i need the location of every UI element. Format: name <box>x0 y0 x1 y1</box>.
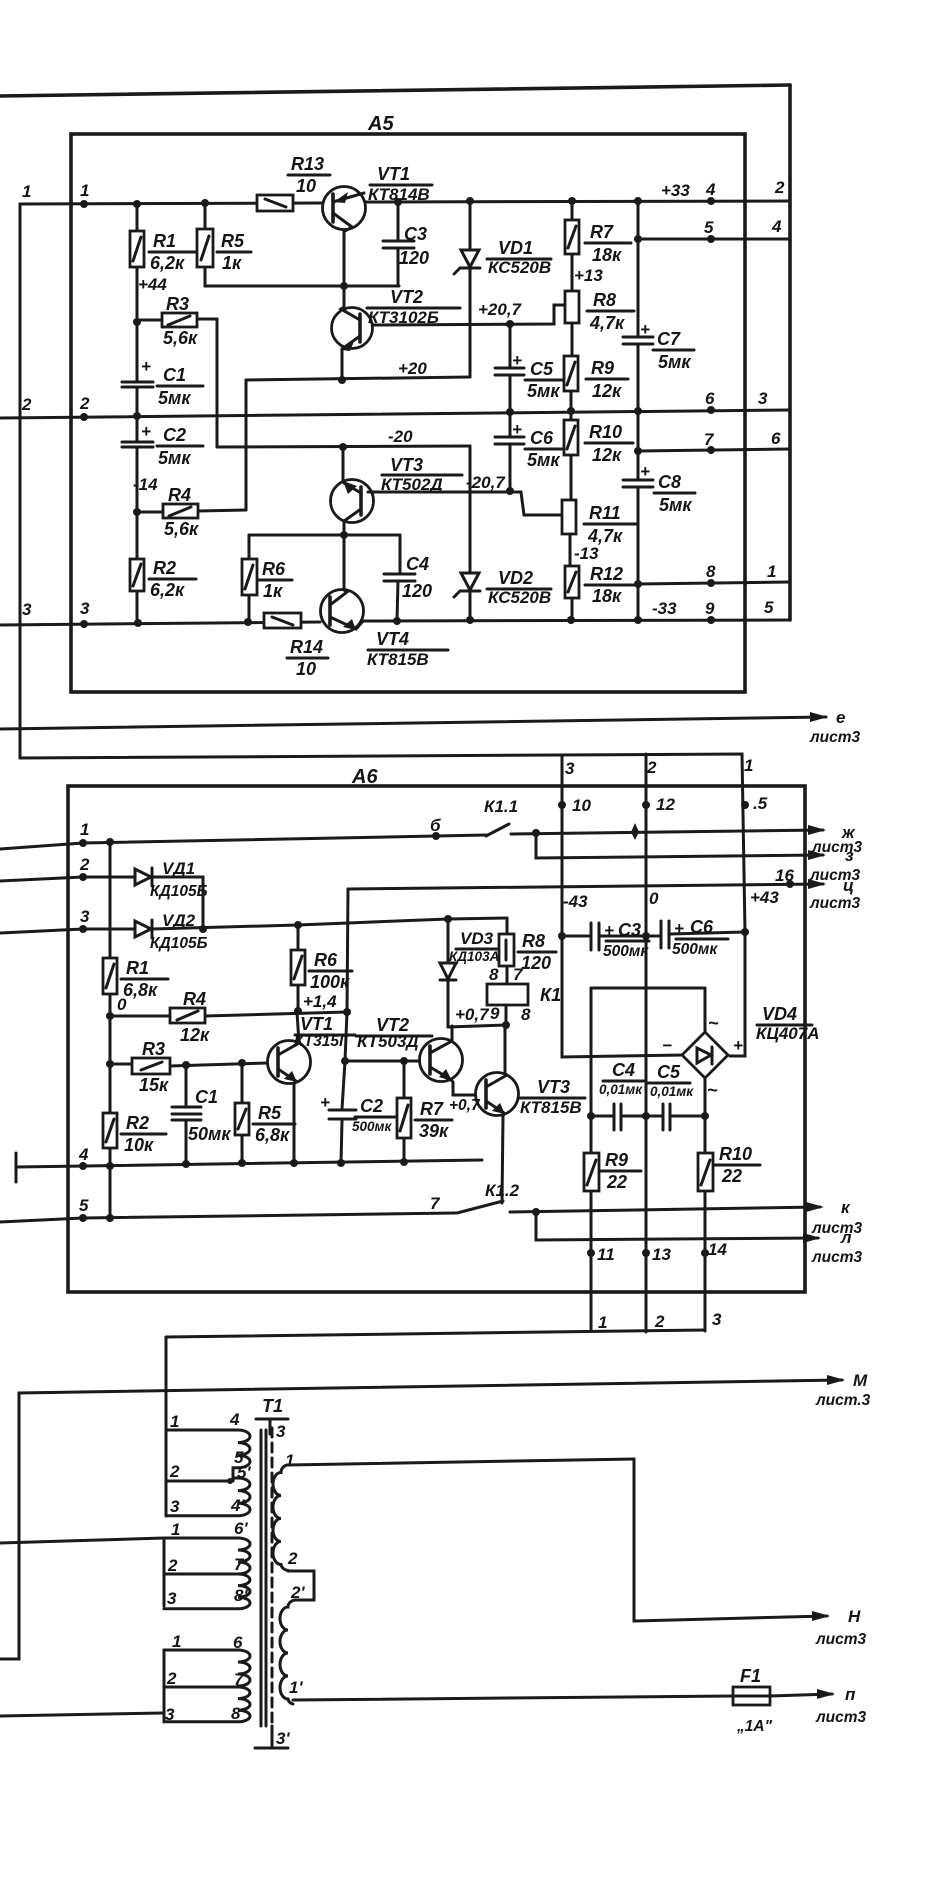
svg-text:3: 3 <box>165 1705 175 1724</box>
svg-text:3: 3 <box>167 1589 177 1608</box>
svg-text:3: 3 <box>565 759 575 778</box>
svg-text:3: 3 <box>758 389 768 408</box>
svg-text:Т1: Т1 <box>262 1396 283 1416</box>
svg-text:8: 8 <box>231 1704 241 1723</box>
svg-text:R5: R5 <box>221 231 245 251</box>
svg-text:7': 7' <box>234 1555 248 1574</box>
svg-text:лист3: лист3 <box>815 1631 867 1648</box>
svg-text:з: з <box>845 846 854 865</box>
svg-text:C7: C7 <box>657 329 681 349</box>
svg-text:4,7к: 4,7к <box>587 526 623 546</box>
svg-text:R4: R4 <box>183 989 206 1009</box>
svg-text:лист.3: лист.3 <box>815 1392 871 1409</box>
svg-text:VD1: VD1 <box>498 238 533 258</box>
svg-text:500мк: 500мк <box>603 943 649 960</box>
svg-text:6,8к: 6,8к <box>255 1125 290 1145</box>
svg-text:+1,4: +1,4 <box>303 992 337 1011</box>
svg-text:C1: C1 <box>195 1087 218 1107</box>
svg-text:+: + <box>141 357 151 376</box>
svg-text:лист3: лист3 <box>809 895 861 912</box>
svg-text:-13: -13 <box>574 544 599 563</box>
svg-text:-20: -20 <box>388 427 413 446</box>
svg-text:VD2: VD2 <box>498 568 533 588</box>
svg-text:2: 2 <box>166 1669 177 1688</box>
svg-text:R9: R9 <box>605 1150 628 1170</box>
svg-text:1: 1 <box>767 562 776 581</box>
svg-text:5: 5 <box>79 1196 89 1215</box>
svg-text:4': 4' <box>230 1496 245 1515</box>
svg-text:VT4: VT4 <box>376 629 409 649</box>
svg-text:22: 22 <box>606 1172 627 1192</box>
svg-text:2: 2 <box>774 178 785 197</box>
svg-text:VD3: VD3 <box>460 929 494 948</box>
svg-text:КД105Б: КД105Б <box>150 883 208 900</box>
svg-text:+13: +13 <box>574 266 603 285</box>
svg-text:100к: 100к <box>310 972 350 992</box>
svg-text:+0,7: +0,7 <box>455 1005 490 1024</box>
svg-text:C2: C2 <box>163 425 186 445</box>
svg-text:16: 16 <box>775 866 794 885</box>
svg-text:КД105Б: КД105Б <box>150 935 208 952</box>
svg-text:6: 6 <box>705 389 715 408</box>
svg-text:0,01мк: 0,01мк <box>650 1084 694 1099</box>
svg-text:4,7к: 4,7к <box>589 313 625 333</box>
svg-text:КТ815В: КТ815В <box>520 1098 582 1117</box>
svg-text:4: 4 <box>771 217 782 236</box>
svg-text:-20,7: -20,7 <box>466 473 506 492</box>
svg-text:3: 3 <box>170 1497 180 1516</box>
svg-text:к: к <box>841 1198 851 1217</box>
svg-text:5мк: 5мк <box>659 495 692 515</box>
svg-text:3': 3' <box>276 1729 290 1748</box>
svg-text:0: 0 <box>117 995 127 1014</box>
svg-text:R9: R9 <box>591 358 614 378</box>
svg-text:3: 3 <box>80 599 90 618</box>
svg-text:+20: +20 <box>398 359 427 378</box>
svg-text:C4: C4 <box>406 554 429 574</box>
svg-text:2: 2 <box>646 758 657 777</box>
svg-text:5мк: 5мк <box>158 388 191 408</box>
svg-text:12к: 12к <box>592 445 622 465</box>
svg-text:2: 2 <box>654 1312 665 1331</box>
svg-text:К1.1: К1.1 <box>484 797 518 816</box>
svg-text:Н: Н <box>848 1607 861 1626</box>
svg-text:+0,7: +0,7 <box>449 1097 481 1114</box>
svg-text:R10: R10 <box>589 422 622 442</box>
svg-text:3: 3 <box>80 907 90 926</box>
svg-text:VT3: VT3 <box>537 1077 570 1097</box>
svg-text:КС520В: КС520В <box>488 258 551 277</box>
svg-text:R12: R12 <box>590 564 623 584</box>
svg-text:9: 9 <box>490 1004 500 1023</box>
svg-text:18к: 18к <box>592 245 622 265</box>
svg-text:-43: -43 <box>563 892 588 911</box>
svg-text:VT1: VT1 <box>300 1014 333 1034</box>
svg-text:3: 3 <box>712 1310 722 1329</box>
svg-text:6,8к: 6,8к <box>123 980 158 1000</box>
svg-text:-14: -14 <box>133 475 158 494</box>
svg-text:R8: R8 <box>593 290 616 310</box>
svg-text:5': 5' <box>237 1463 251 1482</box>
svg-text:C3: C3 <box>618 920 641 940</box>
svg-text:R13: R13 <box>291 154 324 174</box>
svg-text:2: 2 <box>167 1556 178 1575</box>
svg-text:F1: F1 <box>740 1666 761 1686</box>
svg-text:8: 8 <box>489 965 499 984</box>
svg-text:+: + <box>604 921 614 940</box>
svg-text:5: 5 <box>704 218 714 237</box>
svg-text:R2: R2 <box>153 558 176 578</box>
svg-text:C4: C4 <box>612 1060 635 1080</box>
svg-text:+: + <box>512 420 522 439</box>
svg-text:10: 10 <box>572 796 591 815</box>
svg-text:C3: C3 <box>404 224 427 244</box>
svg-text:7: 7 <box>234 1670 245 1689</box>
svg-text:15к: 15к <box>139 1075 169 1095</box>
svg-text:5мк: 5мк <box>158 448 191 468</box>
svg-text:39к: 39к <box>419 1121 449 1141</box>
svg-text:7: 7 <box>513 965 524 984</box>
svg-text:3: 3 <box>22 600 32 619</box>
svg-text:К1.2: К1.2 <box>485 1181 520 1200</box>
svg-text:R3: R3 <box>166 294 189 314</box>
svg-text:2: 2 <box>287 1549 298 1568</box>
svg-text:A5: A5 <box>367 113 394 135</box>
svg-text:+: + <box>640 462 650 481</box>
svg-text:VД1: VД1 <box>162 859 195 878</box>
svg-text:R10: R10 <box>719 1144 752 1164</box>
svg-text:C1: C1 <box>163 365 186 385</box>
svg-text:лист3: лист3 <box>811 1220 863 1237</box>
svg-text:VD4: VD4 <box>762 1004 797 1024</box>
svg-text:A6: A6 <box>351 766 378 788</box>
svg-text:e: e <box>836 708 845 727</box>
svg-text:1к: 1к <box>222 253 242 273</box>
svg-text:2: 2 <box>79 394 90 413</box>
svg-text:+44: +44 <box>138 275 167 294</box>
svg-text:КТ503Д: КТ503Д <box>357 1032 419 1051</box>
svg-text:8: 8 <box>706 562 716 581</box>
svg-text:1': 1' <box>289 1678 303 1697</box>
svg-text:10: 10 <box>296 176 316 196</box>
svg-text:4: 4 <box>705 180 716 199</box>
svg-text:18к: 18к <box>592 586 622 606</box>
svg-text:12: 12 <box>656 795 675 814</box>
svg-text:9: 9 <box>705 599 715 618</box>
svg-text:+: + <box>640 320 650 339</box>
svg-text:~: ~ <box>707 1080 718 1100</box>
svg-text:120: 120 <box>399 248 429 268</box>
svg-text:~: ~ <box>708 1013 719 1033</box>
svg-text:КТ815В: КТ815В <box>367 650 429 669</box>
svg-text:2: 2 <box>79 855 90 874</box>
svg-text:13: 13 <box>652 1245 671 1264</box>
svg-text:5,6к: 5,6к <box>164 519 199 539</box>
svg-text:6,2к: 6,2к <box>150 253 185 273</box>
svg-text:R4: R4 <box>168 485 191 505</box>
svg-text:6: 6 <box>771 429 781 448</box>
svg-text:R3: R3 <box>142 1039 165 1059</box>
svg-text:7: 7 <box>430 1194 441 1213</box>
svg-text:12к: 12к <box>592 381 622 401</box>
svg-text:1: 1 <box>172 1632 181 1651</box>
svg-text:5мк: 5мк <box>527 450 560 470</box>
svg-text:5мк: 5мк <box>527 381 560 401</box>
svg-text:6': 6' <box>234 1519 248 1538</box>
svg-text:12к: 12к <box>180 1025 210 1045</box>
svg-text:лист3: лист3 <box>811 1249 863 1266</box>
svg-text:R6: R6 <box>262 559 286 579</box>
svg-text:R7: R7 <box>590 222 614 242</box>
svg-text:лист3: лист3 <box>809 729 861 746</box>
svg-text:500мк: 500мк <box>352 1119 393 1134</box>
svg-text:R2: R2 <box>126 1113 149 1133</box>
svg-text:1: 1 <box>598 1313 607 1332</box>
svg-text:+: + <box>674 919 684 938</box>
svg-text:5: 5 <box>764 598 774 617</box>
svg-text:1: 1 <box>22 182 31 201</box>
svg-text:R14: R14 <box>290 637 323 657</box>
svg-text:5,6к: 5,6к <box>163 328 198 348</box>
svg-text:4: 4 <box>78 1145 89 1164</box>
svg-text:6,2к: 6,2к <box>150 580 185 600</box>
svg-text:КТ315Г: КТ315Г <box>294 1033 350 1050</box>
svg-text:8': 8' <box>234 1586 248 1605</box>
svg-text:7: 7 <box>704 430 715 449</box>
svg-text:6: 6 <box>233 1633 243 1652</box>
svg-text:М: М <box>853 1371 868 1390</box>
svg-text:C8: C8 <box>658 472 681 492</box>
svg-text:б: б <box>430 816 441 835</box>
svg-text:„1А": „1А" <box>736 1718 773 1735</box>
svg-text:+: + <box>320 1093 330 1112</box>
svg-text:R1: R1 <box>126 958 149 978</box>
svg-text:0: 0 <box>649 889 659 908</box>
svg-text:2: 2 <box>21 395 32 414</box>
svg-text:VT2: VT2 <box>390 287 423 307</box>
svg-text:1: 1 <box>80 181 89 200</box>
svg-text:1: 1 <box>80 820 89 839</box>
svg-text:1к: 1к <box>263 581 283 601</box>
svg-text:К1: К1 <box>540 985 561 1005</box>
svg-text:-33: -33 <box>652 599 677 618</box>
svg-text:R11: R11 <box>589 503 621 523</box>
svg-text:+20,7: +20,7 <box>478 300 523 319</box>
svg-text:VT3: VT3 <box>390 455 423 475</box>
svg-text:+: + <box>141 422 151 441</box>
svg-text:1: 1 <box>170 1412 179 1431</box>
svg-text:2: 2 <box>169 1462 180 1481</box>
svg-text:+43: +43 <box>750 888 779 907</box>
svg-text:R6: R6 <box>314 950 338 970</box>
svg-text:+33: +33 <box>661 181 690 200</box>
svg-text:120: 120 <box>521 953 551 973</box>
svg-text:3: 3 <box>276 1422 286 1441</box>
svg-text:R8: R8 <box>522 931 545 951</box>
svg-text:КЦ407А: КЦ407А <box>756 1024 819 1043</box>
svg-text:C5: C5 <box>530 359 554 379</box>
svg-text:8: 8 <box>521 1005 531 1024</box>
svg-text:0,01мк: 0,01мк <box>599 1082 643 1097</box>
svg-text:120: 120 <box>402 581 432 601</box>
svg-text:1: 1 <box>744 756 753 775</box>
svg-text:+: + <box>733 1036 743 1055</box>
svg-text:R5: R5 <box>258 1103 282 1123</box>
svg-text:C2: C2 <box>360 1096 383 1116</box>
svg-text:1: 1 <box>285 1451 294 1470</box>
svg-text:10к: 10к <box>124 1135 154 1155</box>
svg-text:C6: C6 <box>690 917 714 937</box>
svg-text:C5: C5 <box>657 1062 681 1082</box>
svg-text:КС520В: КС520В <box>488 588 551 607</box>
svg-text:11: 11 <box>597 1245 615 1264</box>
svg-text:л: л <box>840 1228 852 1247</box>
svg-text:1: 1 <box>171 1520 180 1539</box>
svg-text:10: 10 <box>296 659 316 679</box>
svg-text:4: 4 <box>229 1410 240 1429</box>
svg-text:ц: ц <box>843 876 854 895</box>
svg-text:500мк: 500мк <box>672 941 718 958</box>
svg-text:5мк: 5мк <box>658 352 691 372</box>
svg-text:14: 14 <box>708 1240 727 1259</box>
svg-text:R1: R1 <box>153 231 176 251</box>
svg-text:.5: .5 <box>753 794 768 813</box>
svg-text:−: − <box>662 1036 672 1055</box>
svg-text:КД103А: КД103А <box>449 949 499 964</box>
svg-text:+: + <box>512 351 522 370</box>
svg-text:22: 22 <box>721 1166 742 1186</box>
svg-text:50мк: 50мк <box>188 1124 231 1144</box>
svg-text:R7: R7 <box>420 1099 444 1119</box>
svg-text:п: п <box>845 1685 856 1704</box>
svg-text:C6: C6 <box>530 428 554 448</box>
svg-text:лист3: лист3 <box>815 1709 867 1726</box>
svg-text:VT1: VT1 <box>377 164 410 184</box>
